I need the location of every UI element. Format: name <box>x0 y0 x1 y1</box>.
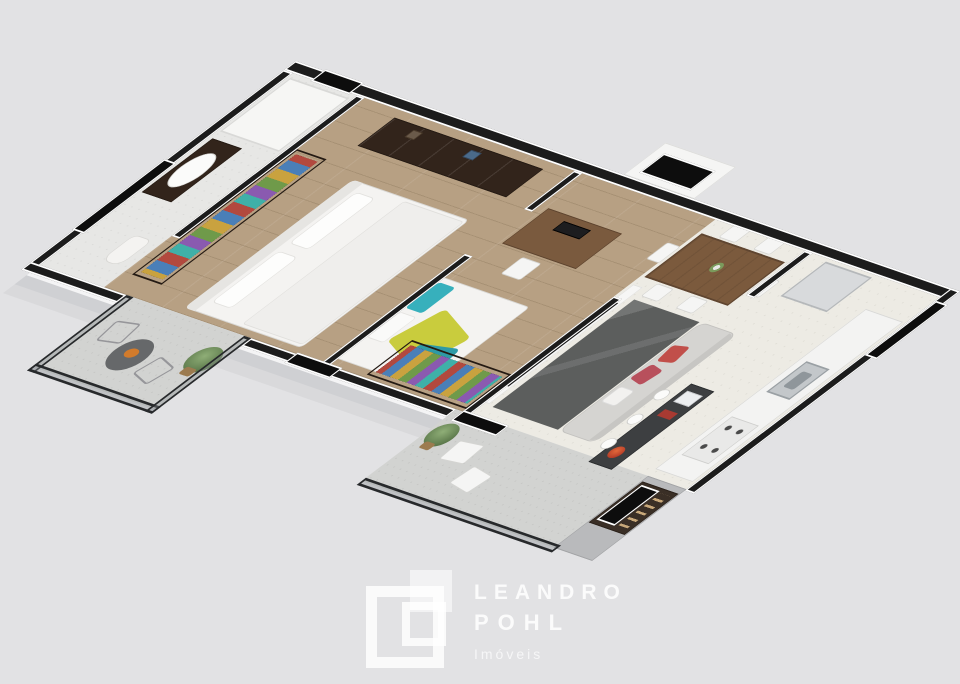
brand-tagline: Imóveis <box>474 647 627 661</box>
floorplan-stage: LEANDRO POHL Imóveis <box>0 0 960 684</box>
logo-text: LEANDRO POHL Imóveis <box>474 570 627 661</box>
apartment-plan <box>40 73 939 489</box>
leandro-pohl-logo-icon <box>366 570 454 662</box>
brand-name-line1: LEANDRO <box>474 582 627 603</box>
watermark: LEANDRO POHL Imóveis <box>366 570 627 662</box>
brand-name-line2: POHL <box>474 612 627 634</box>
logo-square-inner <box>402 602 446 646</box>
